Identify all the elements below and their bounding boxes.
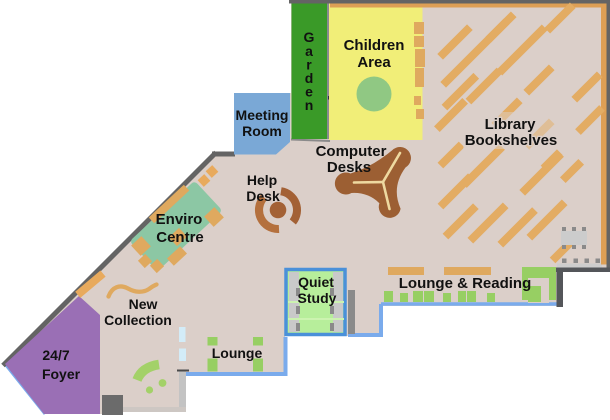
svg-text:Area: Area: [357, 54, 391, 71]
svg-text:Children: Children: [344, 37, 405, 54]
svg-text:New: New: [129, 296, 158, 312]
svg-text:Desks: Desks: [327, 159, 371, 176]
svg-text:Help: Help: [247, 172, 277, 188]
svg-text:Study: Study: [298, 290, 337, 306]
svg-text:n: n: [305, 97, 314, 113]
svg-text:Collection: Collection: [104, 312, 172, 328]
svg-text:24/7: 24/7: [42, 347, 69, 363]
svg-text:Meeting: Meeting: [236, 107, 289, 123]
svg-text:Desk: Desk: [246, 188, 280, 204]
svg-text:Lounge: Lounge: [212, 345, 263, 361]
svg-text:Foyer: Foyer: [42, 366, 81, 382]
svg-text:Computer: Computer: [316, 143, 387, 160]
svg-text:Centre: Centre: [156, 229, 204, 246]
svg-text:Library: Library: [485, 116, 537, 133]
svg-text:Bookshelves: Bookshelves: [465, 132, 558, 149]
svg-text:Quiet: Quiet: [298, 274, 334, 290]
svg-text:Enviro: Enviro: [156, 211, 203, 228]
svg-text:Lounge & Reading: Lounge & Reading: [399, 275, 532, 292]
svg-text:Room: Room: [242, 123, 282, 139]
